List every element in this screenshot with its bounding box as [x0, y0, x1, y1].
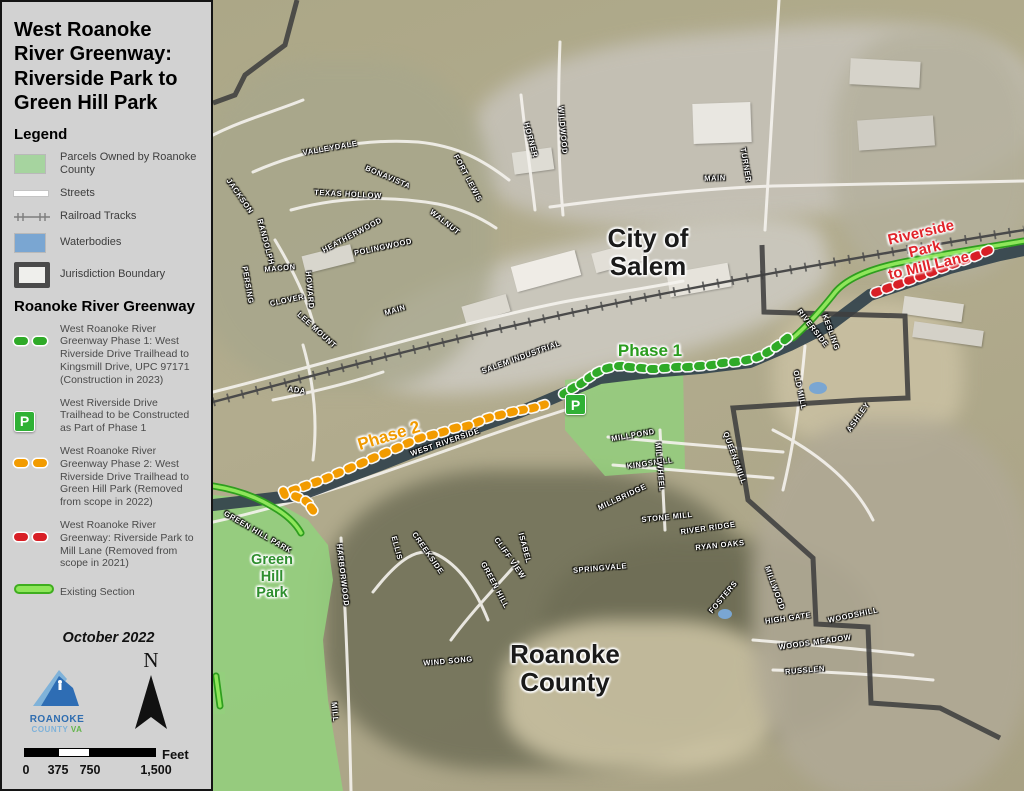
roanoke-county-logo: ROANOKE COUNTY VA [26, 664, 88, 735]
map-canvas: VALLEYDALEBONAVISTAFORT LEWISTEXAS HOLLO… [213, 0, 1024, 791]
legend-item-waterbodies: Waterbodies [14, 233, 201, 253]
greenway-item-trailhead: P West Riverside Drive Trailhead to be C… [14, 397, 201, 435]
north-arrow: N [128, 650, 174, 738]
greenway-heading: Roanoke River Greenway [14, 298, 201, 315]
green-dashes-icon [14, 337, 47, 345]
greenway-item-riverside: West Roanoke River Greenway: Riverside P… [14, 519, 201, 570]
logo-text-county-va: COUNTY VA [26, 725, 88, 735]
red-dashes-icon [14, 533, 47, 541]
greenway-item-phase1: West Roanoke River Greenway Phase 1: Wes… [14, 323, 201, 387]
railroad-line-icon [14, 211, 50, 223]
orange-dashes-icon [14, 459, 47, 467]
scale-bar: Feet 0 375 750 1,500 [22, 744, 207, 784]
map-labels-layer: City of Salem Roanoke County Green Hill … [213, 0, 1024, 791]
scale-tick: 0 [23, 763, 30, 777]
greenway-label: Existing Section [60, 580, 135, 599]
phase-2-label: Phase 2 [355, 417, 422, 455]
city-of-salem-label: City of Salem [608, 224, 689, 280]
legend-panel: West Roanoke River Greenway: Riverside P… [0, 0, 213, 791]
legend-label: Streets [60, 187, 95, 201]
legend-label: Jurisdiction Boundary [60, 268, 165, 282]
legend-label: Railroad Tracks [60, 210, 136, 224]
map-document: West Roanoke River Greenway: Riverside P… [0, 0, 1024, 791]
map-date: October 2022 [2, 630, 215, 646]
legend-item-streets: Streets [14, 187, 201, 201]
trailhead-p-icon: P [565, 394, 586, 415]
jurisdiction-boundary-icon [14, 262, 50, 288]
logo-mountain-icon [29, 664, 85, 710]
greenway-label: West Riverside Drive Trailhead to be Con… [60, 397, 201, 435]
riverside-park-to-mill-lane-label: Riverside Park to Mill Lane [871, 214, 979, 285]
legend-label: Waterbodies [60, 236, 121, 250]
parcel-swatch-icon [14, 154, 46, 174]
greenway-label: West Roanoke River Greenway Phase 2: Wes… [60, 445, 201, 509]
phase-1-label: Phase 1 [618, 341, 682, 361]
north-label: N [128, 650, 174, 671]
legend-item-railroad: Railroad Tracks [14, 210, 201, 224]
street-line-icon [14, 191, 48, 196]
legend-item-jurisdiction: Jurisdiction Boundary [14, 262, 201, 288]
legend-label: Parcels Owned by Roanoke County [60, 151, 201, 179]
scale-tick: 750 [80, 763, 101, 777]
green-hill-park-label: Green Hill Park [251, 552, 293, 602]
greenway-label: West Roanoke River Greenway Phase 1: Wes… [60, 323, 201, 387]
scale-unit: Feet [162, 747, 189, 762]
north-arrow-icon [129, 671, 173, 733]
legend-item-parcels: Parcels Owned by Roanoke County [14, 151, 201, 179]
scale-bar-graphic [24, 748, 156, 757]
map-title: West Roanoke River Greenway: Riverside P… [14, 18, 201, 116]
greenway-item-phase2: West Roanoke River Greenway Phase 2: Wes… [14, 445, 201, 509]
legend-heading: Legend [14, 126, 201, 143]
trailhead-p-icon: P [14, 411, 35, 432]
greenway-item-existing: Existing Section [14, 580, 201, 599]
scale-tick: 375 [48, 763, 69, 777]
logo-text-roanoke: ROANOKE [26, 715, 88, 725]
scale-tick: 1,500 [140, 763, 171, 777]
greenway-label: West Roanoke River Greenway: Riverside P… [60, 519, 201, 570]
existing-section-icon [14, 584, 54, 594]
trailhead-p-marker: P [565, 394, 586, 415]
roanoke-county-label: Roanoke County [510, 640, 620, 696]
water-swatch-icon [14, 233, 46, 253]
